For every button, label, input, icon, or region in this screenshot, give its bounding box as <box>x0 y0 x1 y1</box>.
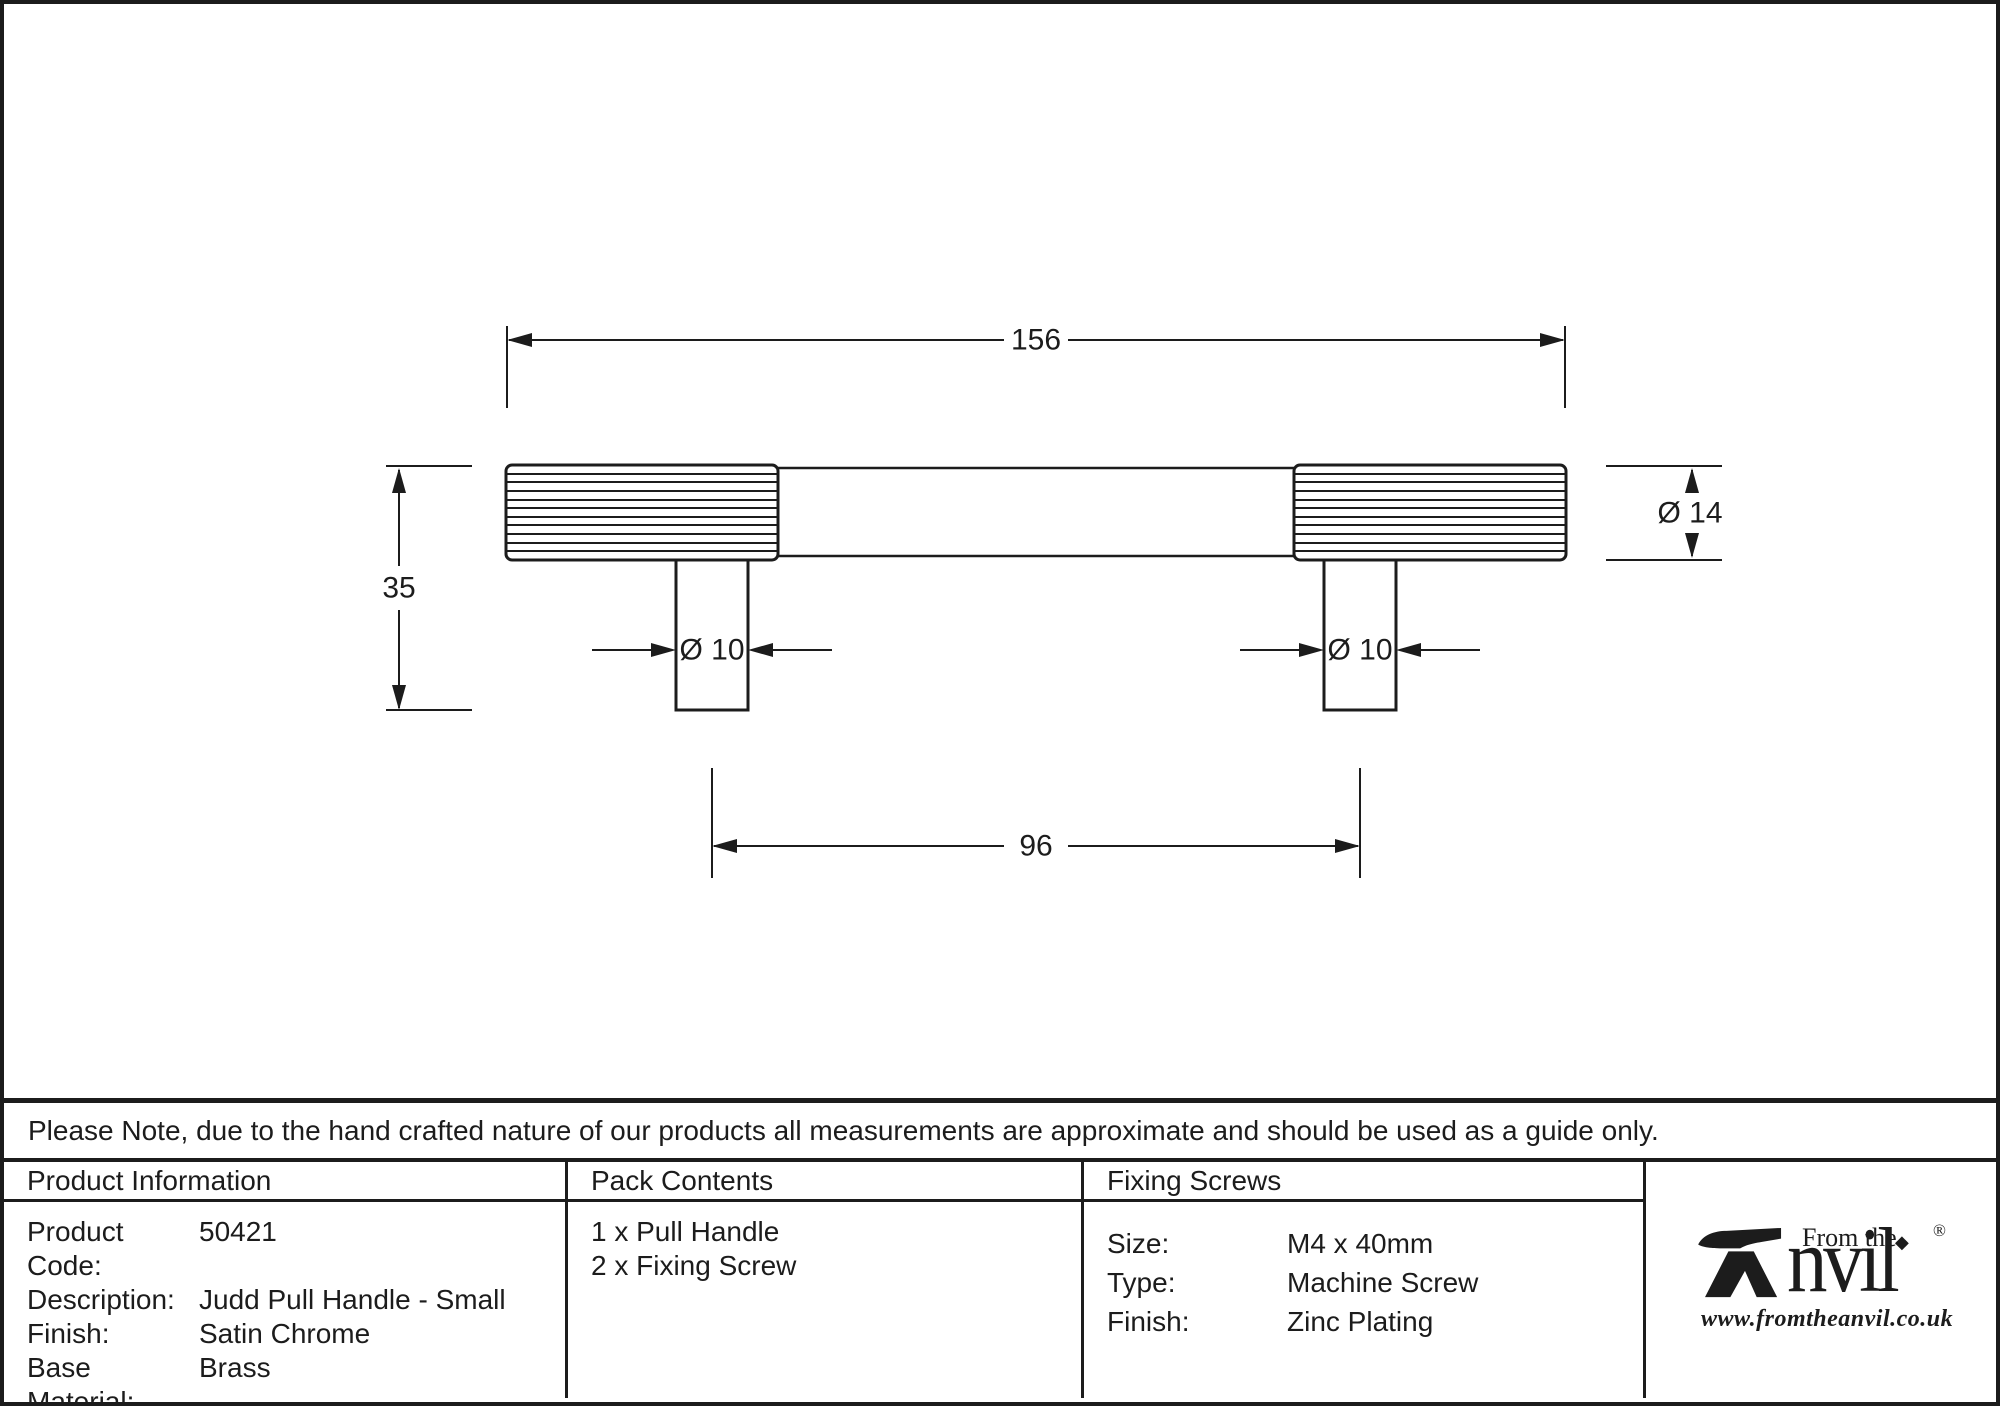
screw-size-value: M4 x 40mm <box>1287 1224 1433 1263</box>
finish-value: Satin Chrome <box>199 1317 370 1351</box>
screw-size-label: Size: <box>1107 1224 1287 1263</box>
screw-finish-label: Finish: <box>1107 1302 1287 1341</box>
logo-tagline: From the <box>1802 1224 1897 1253</box>
table-row: Finish: Satin Chrome <box>27 1317 565 1351</box>
table-row: Type: Machine Screw <box>1107 1263 1643 1302</box>
fixing-screws-cell: Fixing Screws Size: M4 x 40mm Type: Mach… <box>1084 1162 1646 1398</box>
screw-finish-value: Zinc Plating <box>1287 1302 1433 1341</box>
dim-label-96: 96 <box>1019 830 1052 863</box>
measurement-note-band: Please Note, due to the hand crafted nat… <box>4 1098 1996 1162</box>
description-label: Description: <box>27 1283 199 1317</box>
product-information-body: Product Code: 50421 Description: Judd Pu… <box>4 1202 565 1406</box>
screw-type-value: Machine Screw <box>1287 1263 1478 1302</box>
from-the-anvil-logo: nvil From the ◆ ® www.fromtheanvil.co.uk <box>1695 1224 1947 1336</box>
diamond-icon: ◆ <box>1895 1233 1909 1251</box>
table-row: Size: M4 x 40mm <box>1107 1224 1643 1263</box>
dim-label-35: 35 <box>382 572 415 605</box>
description-value: Judd Pull Handle - Small <box>199 1283 506 1317</box>
table-row: Finish: Zinc Plating <box>1107 1302 1643 1341</box>
product-code-label: Product Code: <box>27 1215 199 1283</box>
anvil-icon <box>1695 1226 1793 1304</box>
handle-centre-bar <box>778 468 1294 556</box>
measurement-note-text: Please Note, due to the hand crafted nat… <box>28 1115 1659 1147</box>
list-item: 2 x Fixing Screw <box>591 1249 1081 1283</box>
table-row: Product Code: 50421 <box>27 1215 565 1283</box>
base-material-label: Base Material: <box>27 1351 199 1406</box>
dim-label-left-post: Ø 10 <box>679 634 744 667</box>
fixing-screws-header: Fixing Screws <box>1084 1162 1643 1202</box>
spec-sheet-page: 156 35 Ø 10 <box>0 0 2000 1406</box>
pull-handle-outline <box>506 465 1566 710</box>
base-material-value: Brass <box>199 1351 271 1406</box>
pack-contents-header: Pack Contents <box>568 1162 1081 1202</box>
registered-trademark-icon: ® <box>1933 1222 1946 1239</box>
dim-label-156: 156 <box>1011 324 1061 357</box>
fixing-screws-body: Size: M4 x 40mm Type: Machine Screw Fini… <box>1084 1202 1643 1341</box>
table-row: Base Material: Brass <box>27 1351 565 1406</box>
left-knurled-end <box>506 465 778 560</box>
pack-contents-body: 1 x Pull Handle 2 x Fixing Screw <box>568 1202 1081 1283</box>
screw-type-label: Type: <box>1107 1263 1287 1302</box>
dim-label-handle-diameter: Ø 14 <box>1657 497 1722 530</box>
product-information-header: Product Information <box>4 1162 565 1202</box>
right-knurled-end <box>1294 465 1566 560</box>
dim-label-right-post: Ø 10 <box>1327 634 1392 667</box>
finish-label: Finish: <box>27 1317 199 1351</box>
logo-website-url: www.fromtheanvil.co.uk <box>1701 1306 1953 1333</box>
brand-logo-cell: nvil From the ◆ ® www.fromtheanvil.co.uk <box>1646 1162 1996 1398</box>
product-information-cell: Product Information Product Code: 50421 … <box>4 1162 568 1398</box>
table-row: Description: Judd Pull Handle - Small <box>27 1283 565 1317</box>
product-code-value: 50421 <box>199 1215 277 1283</box>
spec-table: Product Information Product Code: 50421 … <box>4 1162 1996 1398</box>
list-item: 1 x Pull Handle <box>591 1215 1081 1249</box>
pack-contents-cell: Pack Contents 1 x Pull Handle 2 x Fixing… <box>568 1162 1084 1398</box>
